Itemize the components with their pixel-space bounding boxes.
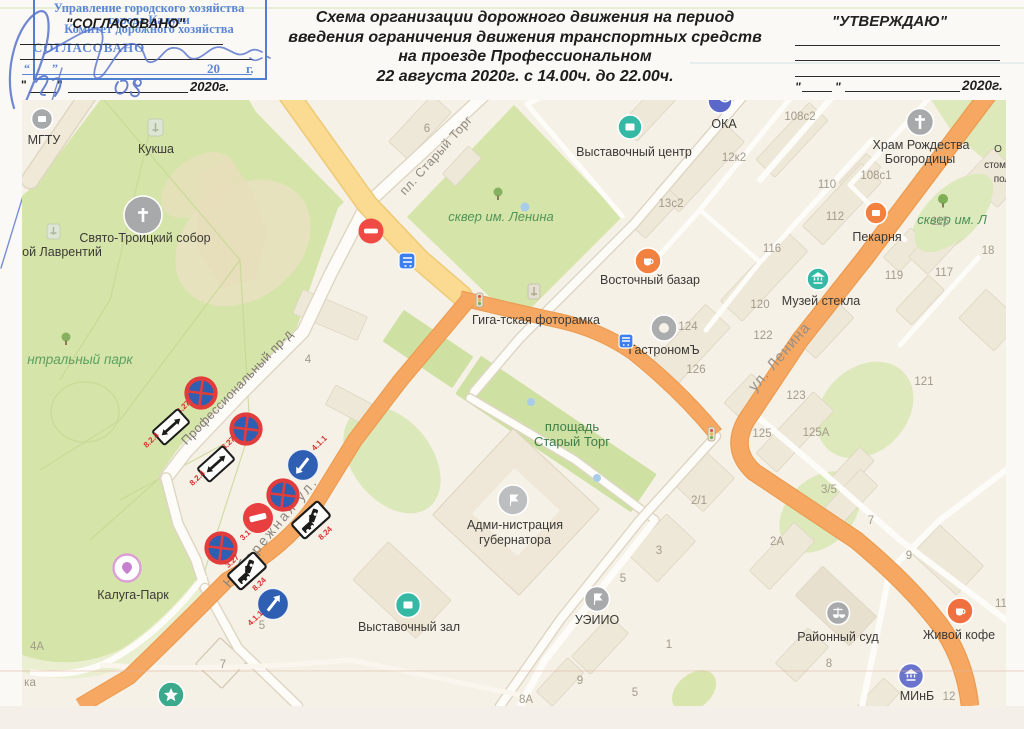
svg-text:9/10: 9/10 xyxy=(581,91,603,103)
svg-text:площадь: площадь xyxy=(545,419,600,434)
svg-text:Кукша: Кукша xyxy=(138,142,174,156)
svg-text:1: 1 xyxy=(666,639,672,651)
svg-text:6: 6 xyxy=(424,123,430,135)
svg-text:МИнБ: МИнБ xyxy=(900,689,935,703)
svg-text:117: 117 xyxy=(935,267,953,279)
svg-text:Гига-тская фоторамка: Гига-тская фоторамка xyxy=(472,313,600,327)
svg-text:МГТУ: МГТУ xyxy=(28,133,61,147)
svg-text:Храм Рождества: Храм Рождества xyxy=(873,138,970,152)
svg-text:7: 7 xyxy=(868,515,874,527)
svg-text:116: 116 xyxy=(763,243,781,255)
svg-text:125А: 125А xyxy=(803,427,830,439)
svg-text:126: 126 xyxy=(686,364,705,376)
svg-text:121: 121 xyxy=(914,376,933,388)
svg-text:12к2: 12к2 xyxy=(722,152,746,164)
svg-text:ой Лаврентий: ой Лаврентий xyxy=(22,245,102,259)
svg-text:8А: 8А xyxy=(519,694,533,706)
svg-text:4А: 4А xyxy=(30,641,44,653)
svg-text:УЭИИО: УЭИИО xyxy=(575,613,620,627)
svg-text:Выставочный зал: Выставочный зал xyxy=(358,620,460,634)
svg-text:5: 5 xyxy=(632,687,638,699)
svg-text:3/5: 3/5 xyxy=(821,484,837,496)
svg-text:8: 8 xyxy=(826,658,832,670)
svg-text:119: 119 xyxy=(885,270,903,282)
svg-text:2/1: 2/1 xyxy=(691,495,707,507)
svg-text:губернатора: губернатора xyxy=(479,533,551,547)
svg-text:ОКА: ОКА xyxy=(711,117,737,131)
svg-text:Районный суд: Районный суд xyxy=(797,630,879,644)
svg-text:2А: 2А xyxy=(770,536,784,548)
svg-text:ГастрономЪ: ГастрономЪ xyxy=(628,343,699,357)
svg-text:сквер им. Л: сквер им. Л xyxy=(917,212,987,227)
svg-text:12: 12 xyxy=(943,691,956,703)
svg-text:11: 11 xyxy=(995,598,1007,610)
svg-text:9: 9 xyxy=(906,550,912,562)
svg-text:5: 5 xyxy=(620,573,626,585)
svg-text:стомат: стомат xyxy=(984,160,1016,171)
svg-text:пол: пол xyxy=(994,174,1011,185)
svg-text:110: 110 xyxy=(818,179,836,191)
svg-text:120: 120 xyxy=(750,299,769,311)
svg-text:сквер им. Ленина: сквер им. Ленина xyxy=(448,209,554,224)
svg-text:4: 4 xyxy=(305,354,312,366)
svg-text:115: 115 xyxy=(931,216,949,228)
svg-text:108с2: 108с2 xyxy=(784,111,815,123)
svg-text:Восточный базар: Восточный базар xyxy=(600,273,700,287)
svg-text:124: 124 xyxy=(678,321,698,333)
svg-text:Калуга-Парк: Калуга-Парк xyxy=(97,588,169,602)
svg-text:18: 18 xyxy=(982,245,995,257)
svg-text:нтральный парк: нтральный парк xyxy=(27,352,133,367)
svg-text:108с1: 108с1 xyxy=(860,170,891,182)
svg-text:ка: ка xyxy=(24,677,36,689)
svg-text:3: 3 xyxy=(656,545,662,557)
svg-text:125: 125 xyxy=(752,428,771,440)
svg-text:Богородицы: Богородицы xyxy=(885,152,955,166)
svg-text:Живой кофе: Живой кофе xyxy=(923,628,995,642)
svg-text:13с2: 13с2 xyxy=(659,198,684,210)
svg-text:122: 122 xyxy=(753,330,772,342)
svg-text:9: 9 xyxy=(577,675,583,687)
svg-text:О: О xyxy=(994,144,1002,155)
svg-text:Выставочный центр: Выставочный центр xyxy=(576,145,692,159)
svg-text:Пекарня: Пекарня xyxy=(852,230,901,244)
svg-text:5: 5 xyxy=(259,620,265,632)
svg-text:123: 123 xyxy=(786,390,805,402)
svg-text:Музей стекла: Музей стекла xyxy=(782,294,860,308)
svg-text:Адми-нистрация: Адми-нистрация xyxy=(467,518,563,532)
svg-text:112: 112 xyxy=(826,211,844,223)
svg-text:Старый Торг: Старый Торг xyxy=(534,434,610,449)
